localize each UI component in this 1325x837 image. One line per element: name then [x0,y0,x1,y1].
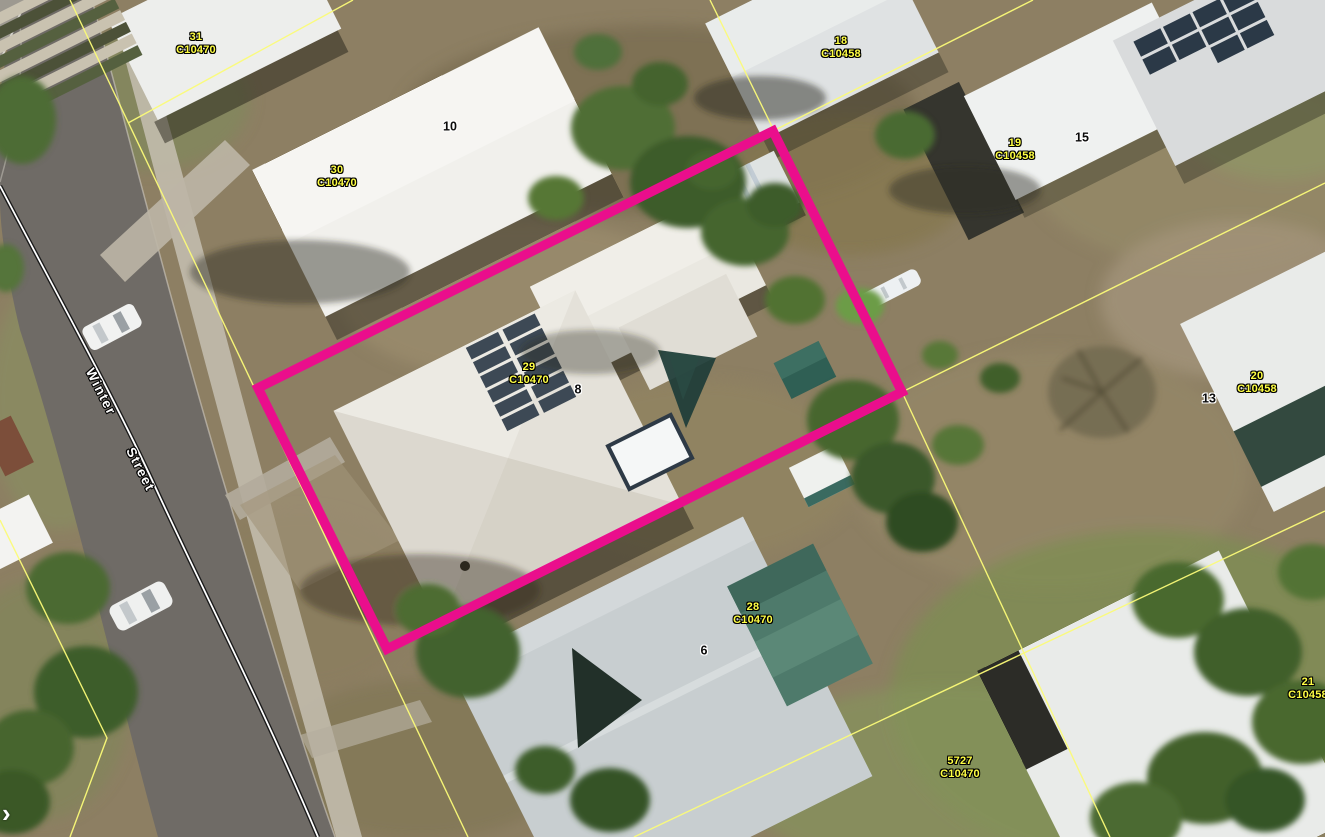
aerial-imagery-layer [0,0,1325,837]
map-viewport[interactable]: 31C10470 30C10470 29C10470 28C10470 5727… [0,0,1325,837]
road-direction-arrow: › [2,798,11,829]
